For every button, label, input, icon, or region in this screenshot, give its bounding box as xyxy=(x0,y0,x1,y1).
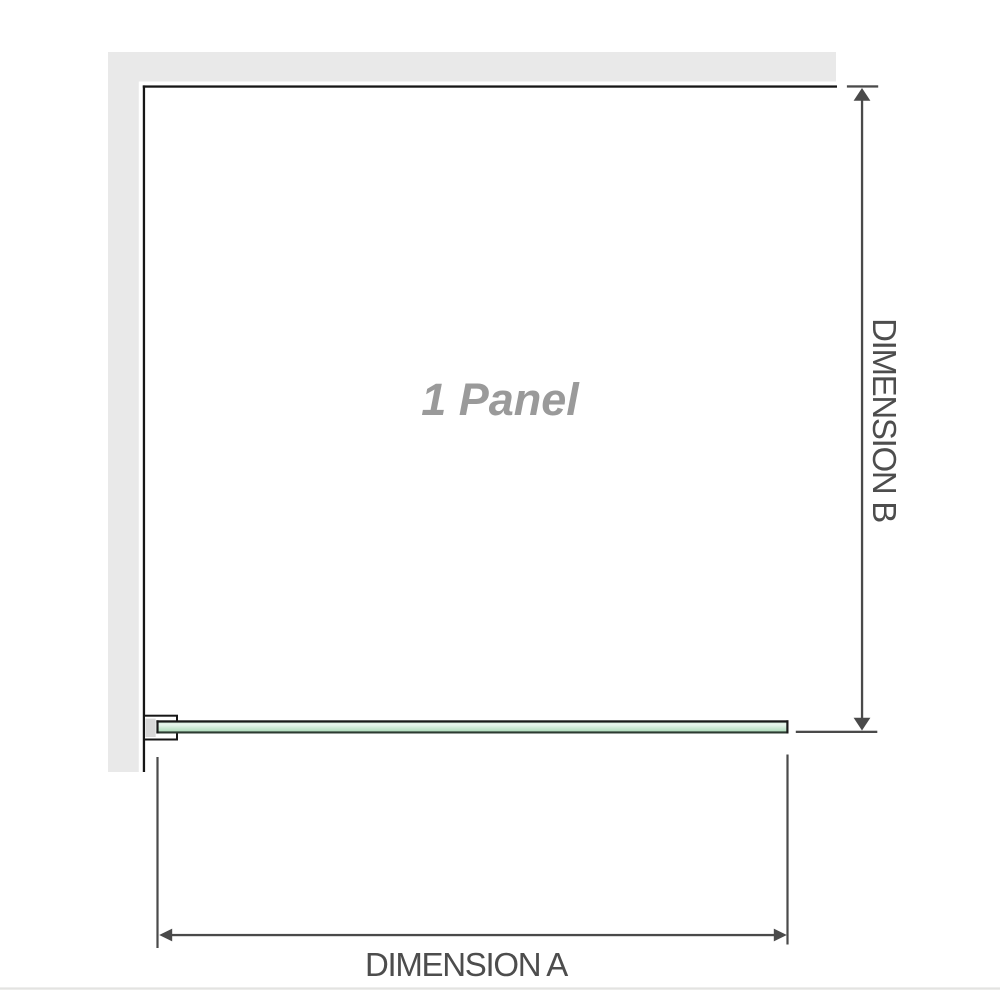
svg-text:1 Panel: 1 Panel xyxy=(421,374,580,425)
svg-text:DIMENSION A: DIMENSION A xyxy=(365,946,568,983)
svg-text:DIMENSION B: DIMENSION B xyxy=(866,318,903,522)
